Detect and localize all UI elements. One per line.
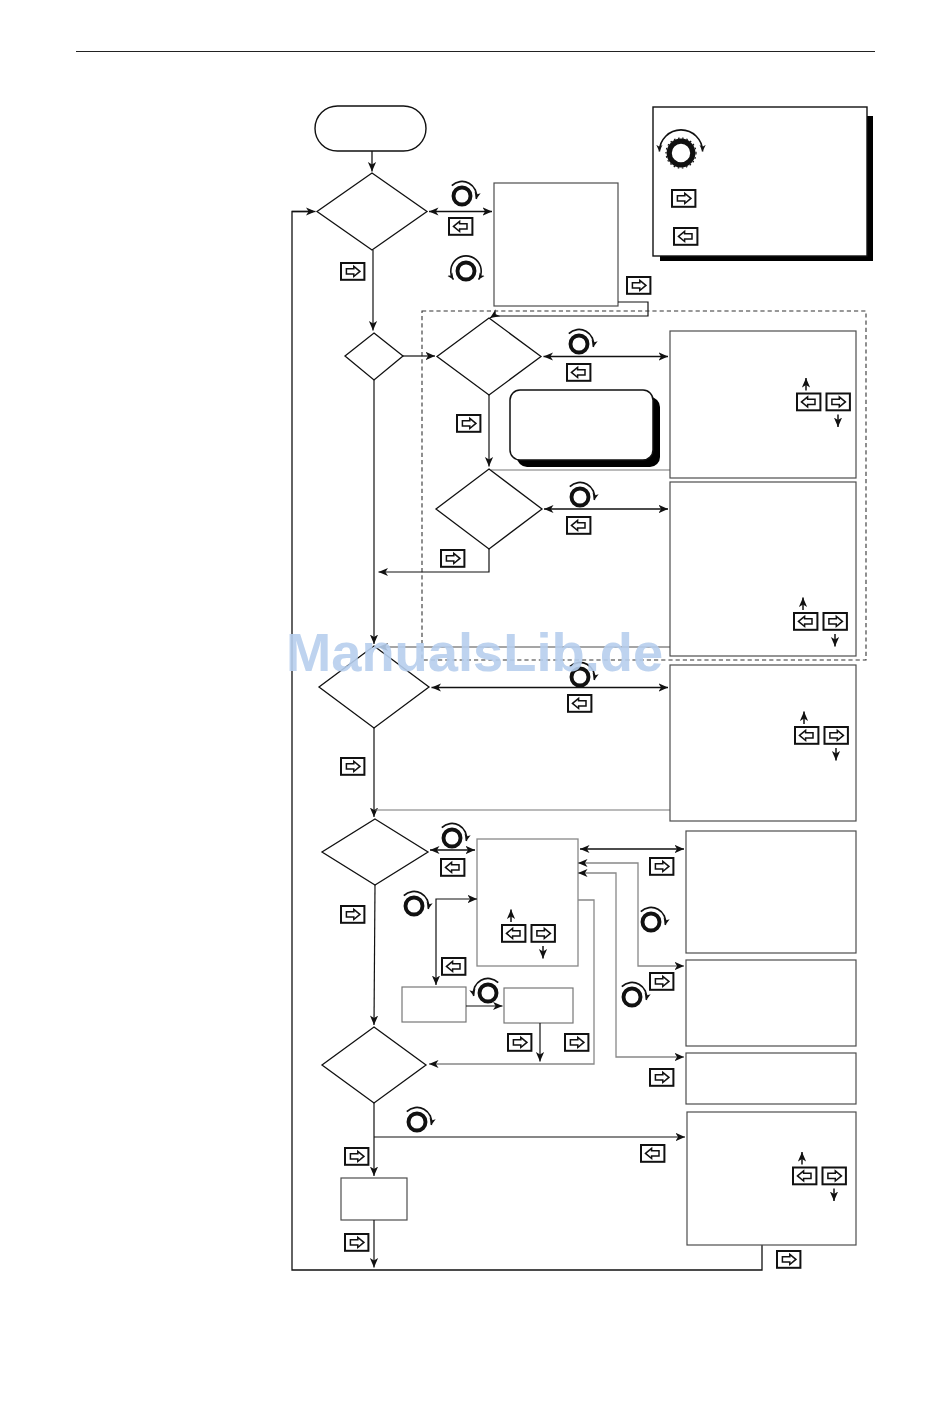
svg-text:ManualsLib.de: ManualsLib.de: [286, 622, 663, 683]
